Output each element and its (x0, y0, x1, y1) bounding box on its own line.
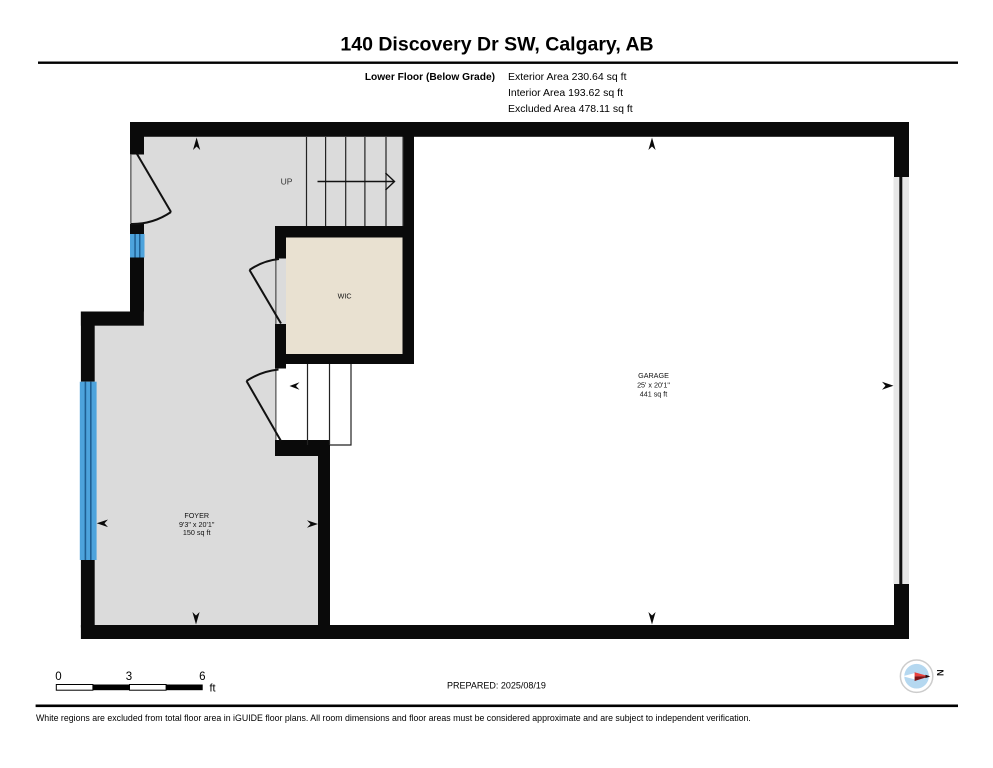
svg-text:150 sq ft: 150 sq ft (183, 528, 211, 537)
svg-text:FOYER: FOYER (184, 511, 209, 520)
svg-text:ft: ft (210, 683, 216, 695)
svg-text:White regions are excluded fro: White regions are excluded from total fl… (36, 713, 751, 723)
svg-text:3: 3 (126, 671, 132, 683)
svg-text:UP: UP (281, 177, 293, 187)
svg-text:0: 0 (55, 671, 61, 683)
svg-text:N: N (935, 669, 945, 676)
svg-text:Excluded Area 478.11 sq ft: Excluded Area 478.11 sq ft (508, 103, 633, 115)
svg-text:Lower Floor (Below Grade): Lower Floor (Below Grade) (365, 72, 495, 83)
svg-text:Interior Area 193.62 sq ft: Interior Area 193.62 sq ft (508, 87, 623, 99)
svg-text:PREPARED: 2025/08/19: PREPARED: 2025/08/19 (447, 681, 546, 691)
svg-text:6: 6 (199, 671, 205, 683)
svg-text:Exterior Area 230.64 sq ft: Exterior Area 230.64 sq ft (508, 71, 627, 83)
svg-text:140 Discovery Dr SW, Calgary,: 140 Discovery Dr SW, Calgary, AB (340, 34, 653, 56)
svg-text:25' x 20'1": 25' x 20'1" (637, 380, 670, 389)
svg-text:441 sq ft: 441 sq ft (640, 389, 668, 398)
svg-text:WIC: WIC (338, 291, 352, 300)
svg-text:GARAGE: GARAGE (638, 371, 669, 380)
